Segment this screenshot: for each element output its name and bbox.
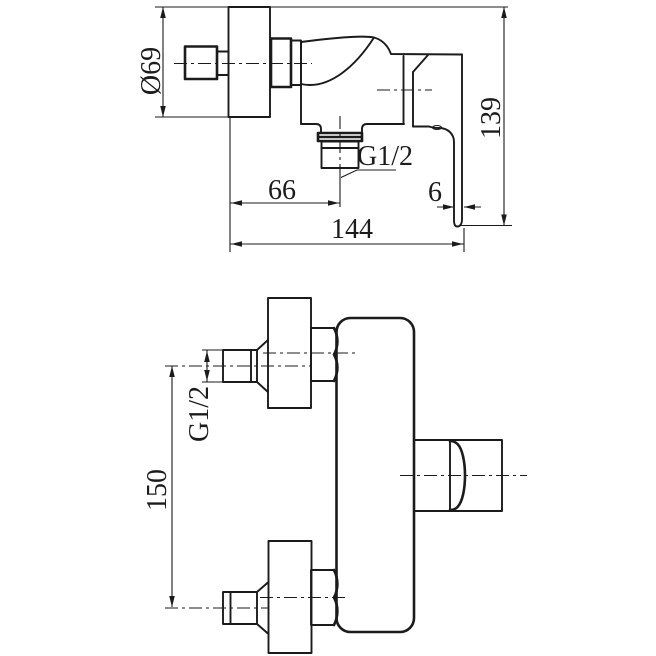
- body-front-sweep: [301, 38, 374, 85]
- arrowhead: [204, 351, 210, 362]
- dim-inlet-thread: G1/2: [184, 350, 223, 442]
- side-view: Ø69 139 66 144: [136, 7, 512, 252]
- upper-nut-outline: [311, 328, 334, 381]
- shower-mixer-drawing: Ø69 139 66 144: [0, 0, 656, 656]
- arrowhead: [501, 215, 507, 226]
- arrowhead: [328, 200, 339, 206]
- arrowhead: [443, 204, 454, 210]
- arrowhead: [160, 106, 166, 117]
- handle-slant: [413, 55, 428, 72]
- arrowhead: [501, 7, 507, 18]
- technical-drawing: Ø69 139 66 144: [0, 0, 656, 656]
- dim-flange-diameter: Ø69: [136, 7, 508, 117]
- dim-label-inlet-thread: G1/2: [184, 386, 215, 442]
- dim-label-outlet-thread: G1/2: [357, 141, 413, 172]
- dim-total-height: 139: [460, 7, 512, 226]
- inlet-fitting-side: [185, 47, 217, 80]
- union-nut-step: [291, 41, 301, 86]
- arrowhead: [204, 370, 210, 381]
- dim-overall-depth: 144: [230, 214, 464, 252]
- arrowhead: [169, 596, 175, 607]
- union-nut-side: [271, 39, 291, 88]
- arrowhead: [231, 241, 242, 247]
- arrowhead: [169, 366, 175, 377]
- body-top-profile: [301, 37, 462, 55]
- dim-inlet-spacing: 150: [142, 366, 175, 607]
- body-bottom-right: [362, 124, 404, 133]
- dim-label-total-height: 139: [476, 97, 507, 139]
- arrowhead: [160, 7, 166, 18]
- arrowhead: [464, 204, 475, 210]
- dim-label-handle-width: 6: [428, 177, 442, 208]
- dim-label-flange-diameter: Ø69: [136, 47, 167, 95]
- arrowhead: [452, 241, 463, 247]
- front-view: G1/2 150: [142, 298, 527, 653]
- dim-label-outlet-offset: 66: [268, 175, 296, 206]
- dim-label-inlet-spacing: 150: [142, 469, 173, 511]
- arrowhead: [231, 200, 242, 206]
- body-bottom-left: [301, 124, 321, 133]
- dim-outlet-thread: G1/2: [341, 141, 413, 178]
- wall-flange-side: [229, 7, 271, 117]
- dim-label-overall-depth: 144: [331, 214, 373, 245]
